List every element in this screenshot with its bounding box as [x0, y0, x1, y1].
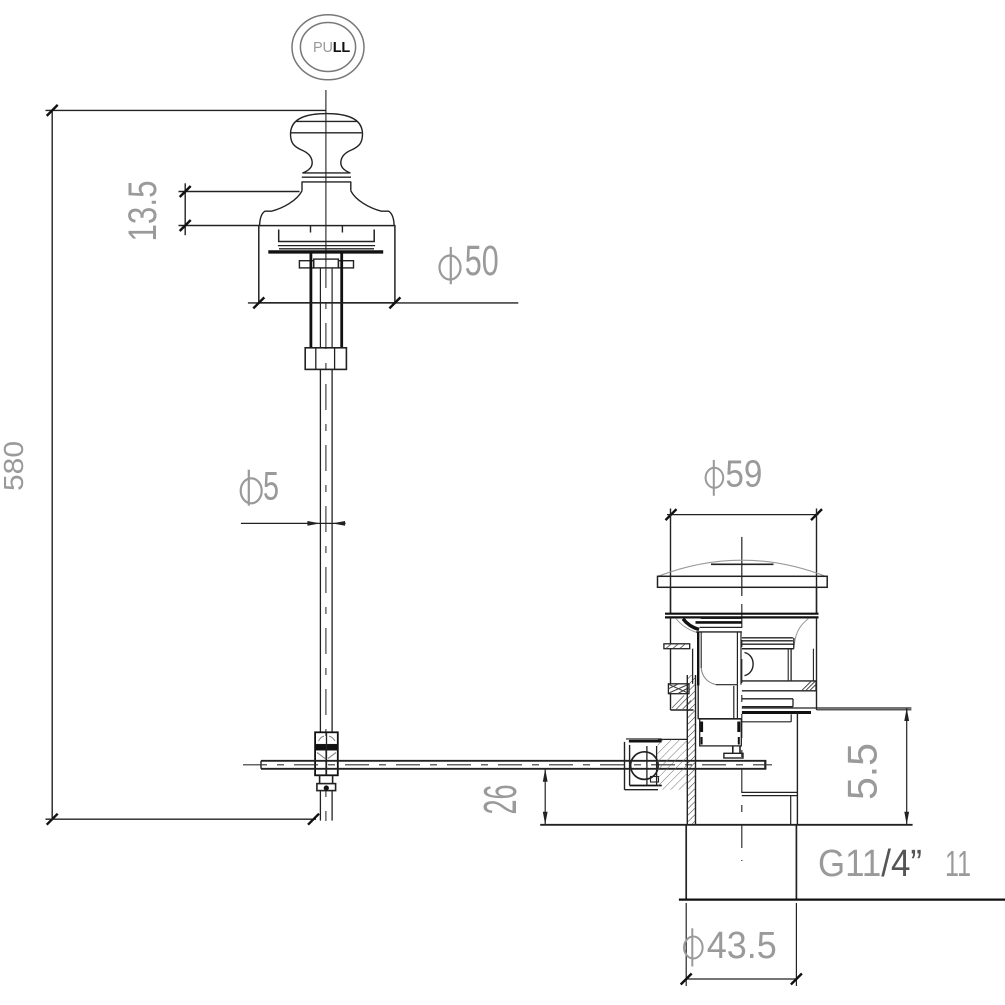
- svg-text:13.5: 13.5: [121, 181, 165, 242]
- svg-text:11: 11: [945, 843, 971, 884]
- svg-text:50: 50: [465, 237, 499, 285]
- svg-text:5.5: 5.5: [839, 743, 886, 800]
- svg-text:580: 580: [0, 441, 29, 491]
- svg-text:59: 59: [725, 454, 762, 496]
- svg-text:5: 5: [263, 465, 279, 509]
- svg-text:26: 26: [474, 785, 526, 815]
- svg-text:43.5: 43.5: [707, 925, 777, 967]
- svg-text:G11/4”: G11/4”: [818, 843, 922, 885]
- svg-text:PULL: PULL: [313, 40, 350, 56]
